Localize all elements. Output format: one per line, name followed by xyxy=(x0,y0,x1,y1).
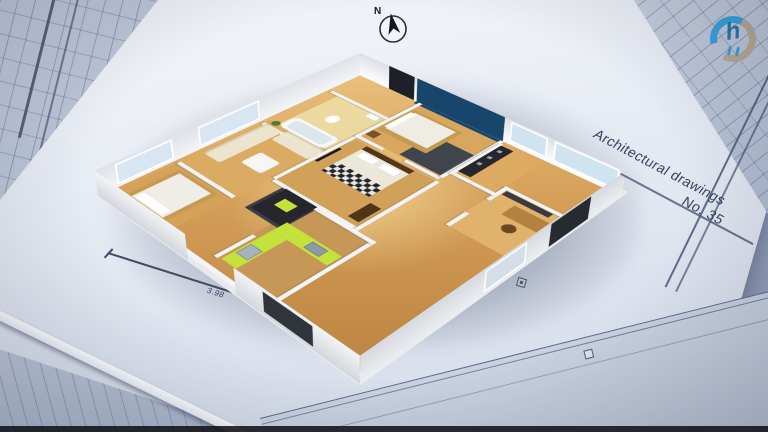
north-compass-icon: N xyxy=(368,2,416,54)
logo-watermark-icon: h xyxy=(704,10,762,70)
drawing-line xyxy=(18,0,57,138)
scene-3d-floorplan-render: 3.98 N xyxy=(0,0,768,432)
column-marker xyxy=(583,349,594,360)
video-progress-bar[interactable] xyxy=(0,426,768,432)
compass-label: N xyxy=(374,6,381,17)
